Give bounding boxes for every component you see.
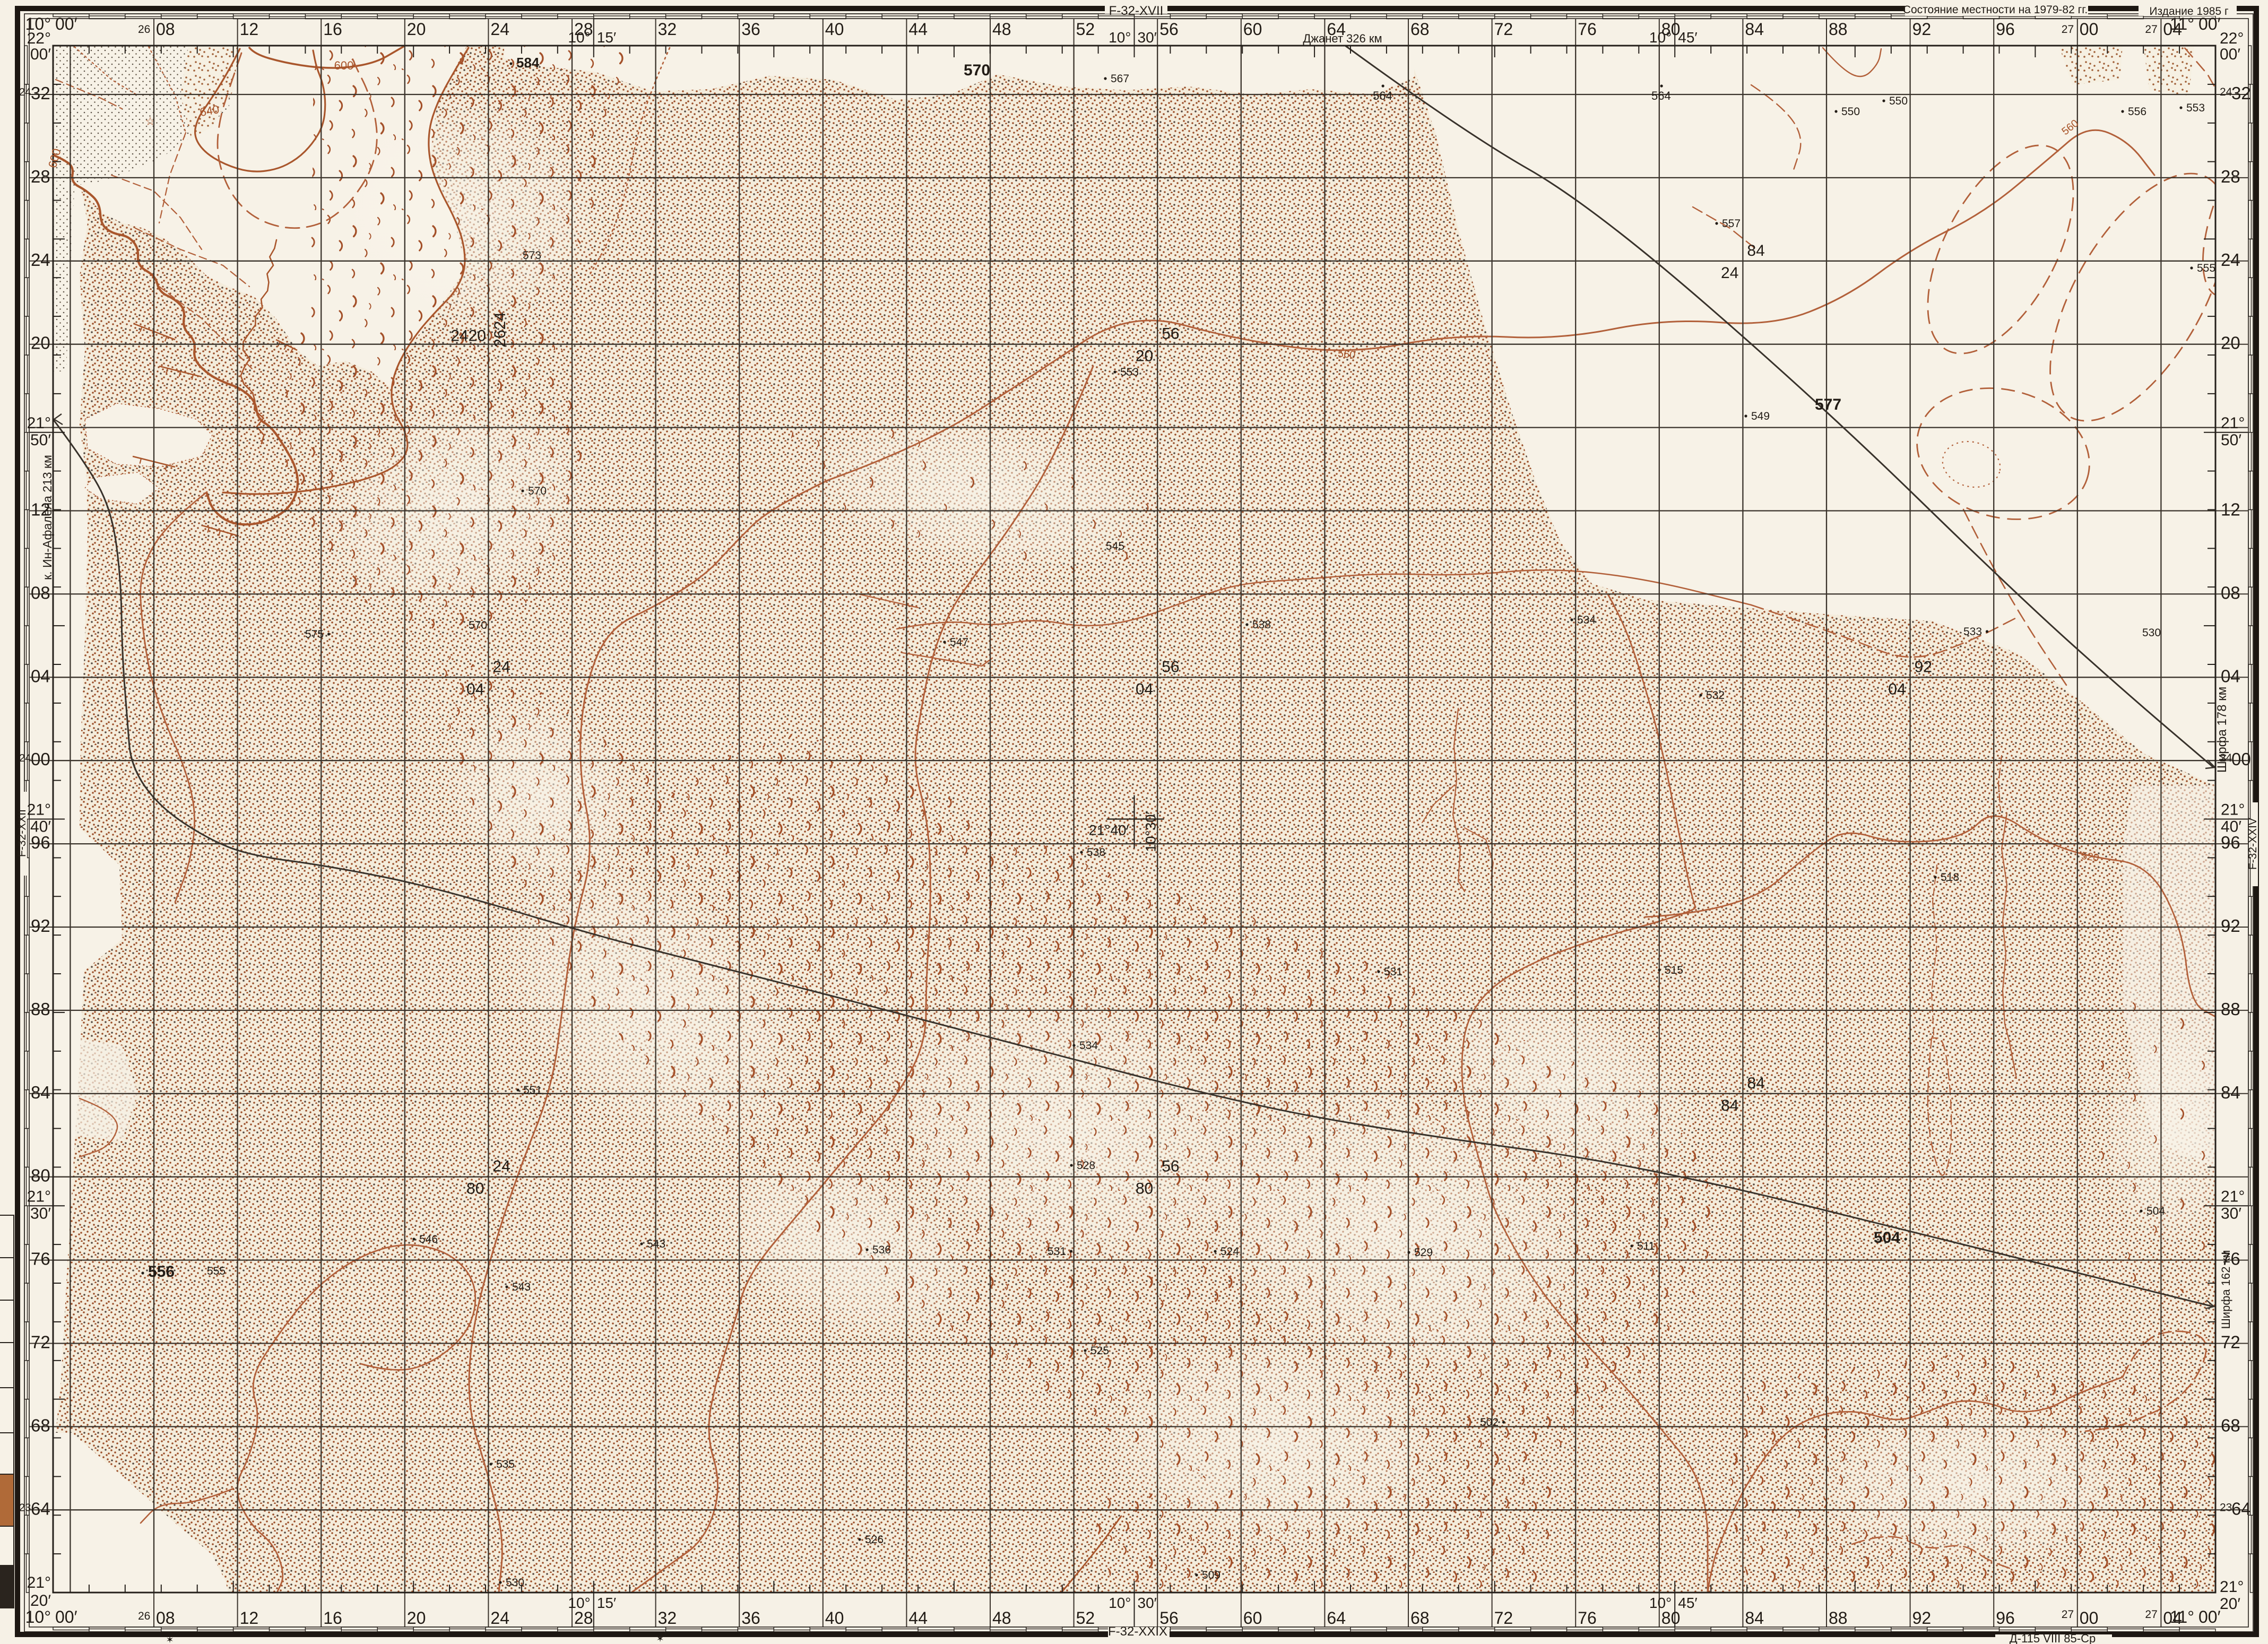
svg-text:44: 44	[908, 1608, 928, 1628]
svg-text:36: 36	[741, 1608, 760, 1628]
svg-text:96: 96	[1996, 1608, 2015, 1628]
svg-text:64: 64	[2231, 1499, 2251, 1518]
svg-text:538: 538	[1087, 846, 1105, 859]
svg-text:21°: 21°	[27, 801, 51, 819]
svg-text:96: 96	[1996, 20, 2015, 39]
svg-text:555: 555	[2197, 262, 2215, 274]
svg-text:72: 72	[31, 1332, 50, 1352]
svg-text:22°: 22°	[27, 30, 51, 47]
svg-text:88: 88	[1829, 20, 1848, 39]
svg-text:24: 24	[31, 250, 50, 270]
svg-text:88: 88	[31, 999, 50, 1019]
svg-text:24: 24	[490, 1608, 509, 1628]
svg-text:48: 48	[992, 1608, 1011, 1628]
svg-text:564: 564	[1651, 89, 1671, 102]
svg-text:72: 72	[2221, 1332, 2240, 1352]
svg-text:00: 00	[2231, 749, 2251, 769]
svg-text:575: 575	[305, 628, 324, 641]
svg-text:00: 00	[2080, 1608, 2099, 1628]
svg-text:00′: 00′	[2220, 46, 2240, 63]
svg-text:30′: 30′	[2221, 1205, 2241, 1222]
svg-text:12: 12	[240, 1608, 259, 1628]
svg-text:Состояние местности на 1979-82: Состояние местности на 1979-82 гг.	[1903, 4, 2088, 16]
svg-text:502: 502	[1480, 1416, 1499, 1429]
svg-text:553: 553	[2186, 102, 2205, 114]
svg-text:573: 573	[523, 249, 541, 262]
svg-text:518: 518	[1941, 871, 1959, 884]
svg-text:84: 84	[1745, 20, 1764, 39]
svg-text:40: 40	[825, 20, 844, 39]
svg-text:92: 92	[1912, 20, 1932, 39]
svg-text:520: 520	[2081, 850, 2100, 864]
svg-text:52: 52	[1076, 1608, 1095, 1628]
svg-text:10°: 10°	[1109, 1595, 1131, 1611]
svg-text:545: 545	[1106, 540, 1124, 552]
svg-text:68: 68	[31, 1415, 50, 1435]
svg-text:20: 20	[1136, 348, 1153, 365]
svg-text:96: 96	[31, 833, 50, 852]
svg-text:549: 549	[1751, 410, 1770, 422]
svg-text:570: 570	[964, 62, 990, 79]
svg-text:26: 26	[138, 23, 150, 36]
svg-text:504: 504	[2146, 1205, 2165, 1217]
svg-text:600: 600	[334, 59, 354, 72]
svg-text:60: 60	[1243, 1608, 1262, 1628]
svg-text:Д-115 VIII 85-Ср: Д-115 VIII 85-Ср	[2010, 1632, 2096, 1644]
svg-text:546: 546	[419, 1233, 438, 1245]
svg-text:20: 20	[2221, 333, 2240, 353]
svg-text:23: 23	[2220, 1501, 2232, 1513]
svg-text:21°: 21°	[27, 1188, 51, 1205]
svg-text:529: 529	[1414, 1247, 1433, 1259]
svg-text:533: 533	[1963, 626, 1982, 638]
svg-text:04: 04	[31, 666, 50, 686]
svg-text:64: 64	[31, 1499, 50, 1518]
svg-text:10°: 10°	[1109, 29, 1131, 46]
svg-text:531: 531	[1384, 966, 1403, 978]
svg-text:84: 84	[31, 1083, 50, 1102]
svg-text:536: 536	[872, 1244, 891, 1256]
svg-text:535: 535	[496, 1458, 515, 1470]
svg-text:504: 504	[1874, 1229, 1900, 1247]
svg-text:40: 40	[825, 1608, 844, 1628]
svg-text:76: 76	[1578, 20, 1597, 39]
svg-text:10°: 10°	[25, 1607, 51, 1626]
svg-text:526: 526	[865, 1534, 884, 1546]
svg-text:524: 524	[1220, 1245, 1239, 1258]
svg-text:✶: ✶	[166, 1634, 174, 1644]
svg-text:F-32-XXII: F-32-XXII	[16, 809, 28, 857]
svg-text:04: 04	[466, 680, 484, 698]
svg-text:509: 509	[1202, 1569, 1220, 1581]
svg-text:560: 560	[1337, 348, 1356, 361]
svg-text:92: 92	[2221, 916, 2240, 936]
svg-text:88: 88	[2221, 999, 2240, 1019]
svg-text:530: 530	[506, 1577, 524, 1589]
svg-text:20: 20	[407, 1608, 426, 1628]
svg-text:27: 27	[2062, 23, 2074, 36]
svg-text:F-32-XVII: F-32-XVII	[1109, 4, 1164, 18]
svg-text:24: 24	[492, 658, 510, 676]
svg-text:76: 76	[1578, 1608, 1597, 1628]
svg-text:40′: 40′	[2221, 818, 2241, 836]
svg-text:577: 577	[1815, 396, 1841, 413]
svg-text:15′: 15′	[597, 29, 616, 46]
svg-text:Ширфа 178 км: Ширфа 178 км	[2215, 687, 2229, 773]
svg-text:84: 84	[1721, 1097, 1738, 1114]
svg-text:Ширфа 162 км: Ширфа 162 км	[2219, 1250, 2232, 1329]
svg-text:10°: 10°	[1649, 1595, 1672, 1611]
svg-text:28: 28	[31, 167, 50, 186]
svg-text:530: 530	[2142, 627, 2161, 639]
svg-text:531: 531	[1048, 1245, 1066, 1258]
svg-text:52: 52	[1076, 20, 1095, 39]
svg-text:00′: 00′	[30, 46, 51, 63]
svg-text:584: 584	[516, 55, 540, 71]
svg-text:50′: 50′	[2221, 431, 2241, 449]
svg-text:30′: 30′	[1138, 29, 1157, 46]
svg-text:80: 80	[1661, 1608, 1681, 1628]
svg-text:76: 76	[31, 1249, 50, 1269]
svg-text:92: 92	[1915, 658, 1932, 676]
svg-text:21°: 21°	[2221, 801, 2245, 819]
svg-text:✶: ✶	[656, 1633, 664, 1644]
svg-text:534: 534	[1577, 614, 1596, 626]
svg-text:08: 08	[2221, 583, 2240, 602]
svg-text:08: 08	[31, 583, 50, 602]
svg-text:56: 56	[1159, 20, 1179, 39]
svg-text:80: 80	[31, 1166, 50, 1186]
svg-text:к. Ин-Афалела 213 км: к. Ин-Афалела 213 км	[40, 455, 54, 580]
svg-text:F-32-XXIX: F-32-XXIX	[1108, 1624, 1167, 1639]
svg-text:2420: 2420	[451, 327, 486, 345]
svg-text:10°: 10°	[568, 29, 590, 46]
svg-text:28: 28	[2221, 167, 2240, 186]
svg-text:16: 16	[323, 1608, 342, 1628]
svg-text:64: 64	[1327, 1608, 1346, 1628]
svg-text:515: 515	[1665, 964, 1683, 976]
svg-text:30′: 30′	[1138, 1595, 1157, 1611]
svg-text:80: 80	[466, 1180, 484, 1198]
svg-text:21°: 21°	[2221, 1188, 2245, 1205]
svg-text:40′: 40′	[30, 818, 51, 836]
svg-text:528: 528	[1077, 1160, 1095, 1172]
svg-text:10°30′: 10°30′	[1143, 812, 1159, 852]
svg-text:2624: 2624	[491, 312, 509, 348]
svg-text:92: 92	[1912, 1608, 1932, 1628]
svg-text:00′: 00′	[2198, 1607, 2221, 1626]
svg-text:00: 00	[31, 749, 50, 769]
svg-text:543: 543	[512, 1281, 531, 1293]
svg-text:532: 532	[1706, 689, 1725, 702]
svg-text:Издание 1985 г: Издание 1985 г	[2149, 5, 2229, 18]
svg-text:56: 56	[1162, 658, 1179, 676]
svg-text:04: 04	[2221, 666, 2240, 686]
svg-text:21°: 21°	[2220, 1578, 2244, 1596]
svg-text:567: 567	[1111, 73, 1129, 85]
svg-text:32: 32	[658, 20, 677, 39]
svg-text:550: 550	[1841, 106, 1860, 118]
svg-text:84: 84	[1745, 1608, 1764, 1628]
svg-text:32: 32	[658, 1608, 677, 1628]
svg-text:08: 08	[156, 1608, 175, 1628]
svg-text:21°: 21°	[2221, 414, 2245, 432]
svg-text:555: 555	[207, 1265, 226, 1277]
svg-text:24: 24	[19, 86, 31, 98]
svg-text:16: 16	[323, 20, 342, 39]
svg-text:60: 60	[1243, 20, 1262, 39]
svg-text:570: 570	[528, 485, 547, 497]
svg-text:72: 72	[1494, 1608, 1513, 1628]
svg-text:80: 80	[1136, 1180, 1153, 1198]
svg-text:27: 27	[2145, 23, 2157, 36]
svg-text:24: 24	[2220, 86, 2232, 98]
svg-text:564: 564	[1373, 89, 1392, 102]
svg-text:28: 28	[574, 1608, 593, 1628]
svg-text:96: 96	[2221, 833, 2240, 852]
svg-text:20: 20	[407, 20, 426, 39]
svg-text:27: 27	[2062, 1608, 2074, 1621]
svg-text:24: 24	[492, 1158, 510, 1175]
svg-text:56: 56	[1162, 325, 1179, 343]
svg-text:556: 556	[148, 1263, 175, 1280]
svg-text:50′: 50′	[30, 431, 51, 449]
svg-text:21°40′: 21°40′	[1089, 823, 1129, 838]
svg-text:12: 12	[240, 20, 259, 39]
svg-text:556: 556	[2128, 106, 2146, 118]
svg-text:11°: 11°	[2170, 1607, 2194, 1626]
svg-text:Джанет 326 км: Джанет 326 км	[1303, 32, 1382, 45]
svg-text:68: 68	[1410, 1608, 1430, 1628]
svg-text:511: 511	[1637, 1240, 1655, 1252]
svg-text:04: 04	[1136, 680, 1153, 698]
svg-text:26: 26	[138, 1610, 150, 1622]
svg-text:32: 32	[31, 83, 50, 103]
svg-text:24: 24	[1721, 264, 1738, 282]
svg-text:553: 553	[1120, 366, 1139, 378]
svg-text:22°: 22°	[2220, 30, 2244, 47]
svg-text:557: 557	[1722, 218, 1741, 230]
svg-text:68: 68	[1410, 20, 1430, 39]
svg-text:24: 24	[490, 20, 509, 39]
svg-text:44: 44	[908, 20, 928, 39]
svg-text:56: 56	[1162, 1158, 1179, 1175]
svg-text:92: 92	[31, 916, 50, 936]
svg-text:21°: 21°	[27, 414, 51, 432]
svg-text:27: 27	[2145, 1608, 2157, 1621]
svg-text:88: 88	[1829, 1608, 1848, 1628]
svg-text:00′: 00′	[55, 14, 77, 33]
svg-text:24: 24	[2221, 250, 2240, 270]
svg-text:20′: 20′	[2220, 1595, 2240, 1613]
svg-text:45′: 45′	[1678, 29, 1697, 46]
svg-text:04: 04	[1888, 680, 1906, 698]
svg-text:45′: 45′	[1678, 1595, 1697, 1611]
svg-text:538: 538	[1252, 619, 1271, 631]
svg-text:00′: 00′	[55, 1607, 77, 1626]
svg-text:543: 543	[647, 1238, 665, 1250]
svg-text:10°: 10°	[568, 1595, 590, 1611]
svg-text:534: 534	[1079, 1040, 1098, 1052]
svg-text:48: 48	[992, 20, 1011, 39]
svg-text:24: 24	[19, 752, 31, 764]
svg-text:84: 84	[2221, 1083, 2240, 1102]
svg-text:00: 00	[2080, 20, 2099, 39]
svg-text:551: 551	[523, 1084, 542, 1096]
svg-text:10°: 10°	[1649, 29, 1672, 46]
svg-text:15′: 15′	[597, 1595, 616, 1611]
svg-text:20: 20	[31, 333, 50, 353]
svg-text:550: 550	[1889, 95, 1908, 107]
svg-text:36: 36	[741, 20, 760, 39]
svg-text:525: 525	[1090, 1345, 1109, 1357]
svg-text:547: 547	[950, 636, 968, 648]
svg-text:32: 32	[2231, 83, 2251, 103]
svg-text:72: 72	[1494, 20, 1513, 39]
svg-text:570: 570	[469, 619, 487, 631]
svg-text:08: 08	[156, 20, 175, 39]
svg-text:84: 84	[1747, 1075, 1764, 1092]
svg-text:68: 68	[2221, 1415, 2240, 1435]
svg-text:12: 12	[2221, 500, 2240, 520]
svg-text:23: 23	[19, 1502, 31, 1513]
svg-text:F-32-XXIV: F-32-XXIV	[2247, 818, 2259, 870]
svg-text:84: 84	[1747, 242, 1764, 259]
svg-text:21°: 21°	[27, 1574, 51, 1591]
svg-text:30′: 30′	[30, 1205, 51, 1222]
